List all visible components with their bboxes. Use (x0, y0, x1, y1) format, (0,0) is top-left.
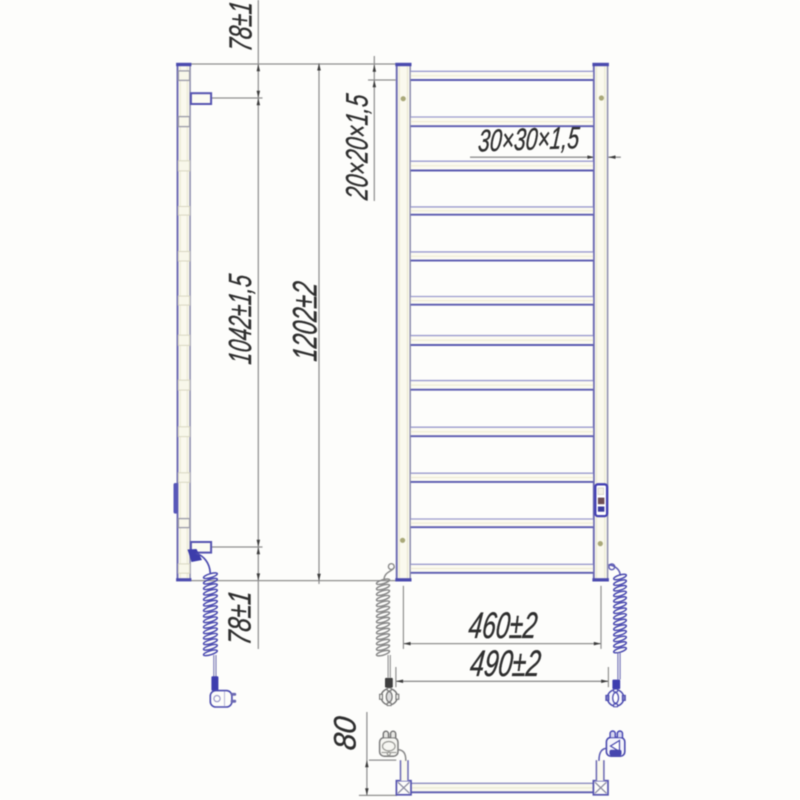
svg-text:1202±2: 1202±2 (287, 279, 325, 363)
svg-text:460±2: 460±2 (467, 604, 540, 646)
svg-text:490±2: 490±2 (468, 642, 543, 684)
svg-text:78±1: 78±1 (223, 0, 259, 53)
svg-text:1042±1,5: 1042±1,5 (222, 272, 258, 365)
svg-text:80: 80 (328, 714, 363, 752)
svg-text:20×20×1,5: 20×20×1,5 (340, 92, 375, 202)
svg-text:78±1: 78±1 (222, 588, 258, 646)
